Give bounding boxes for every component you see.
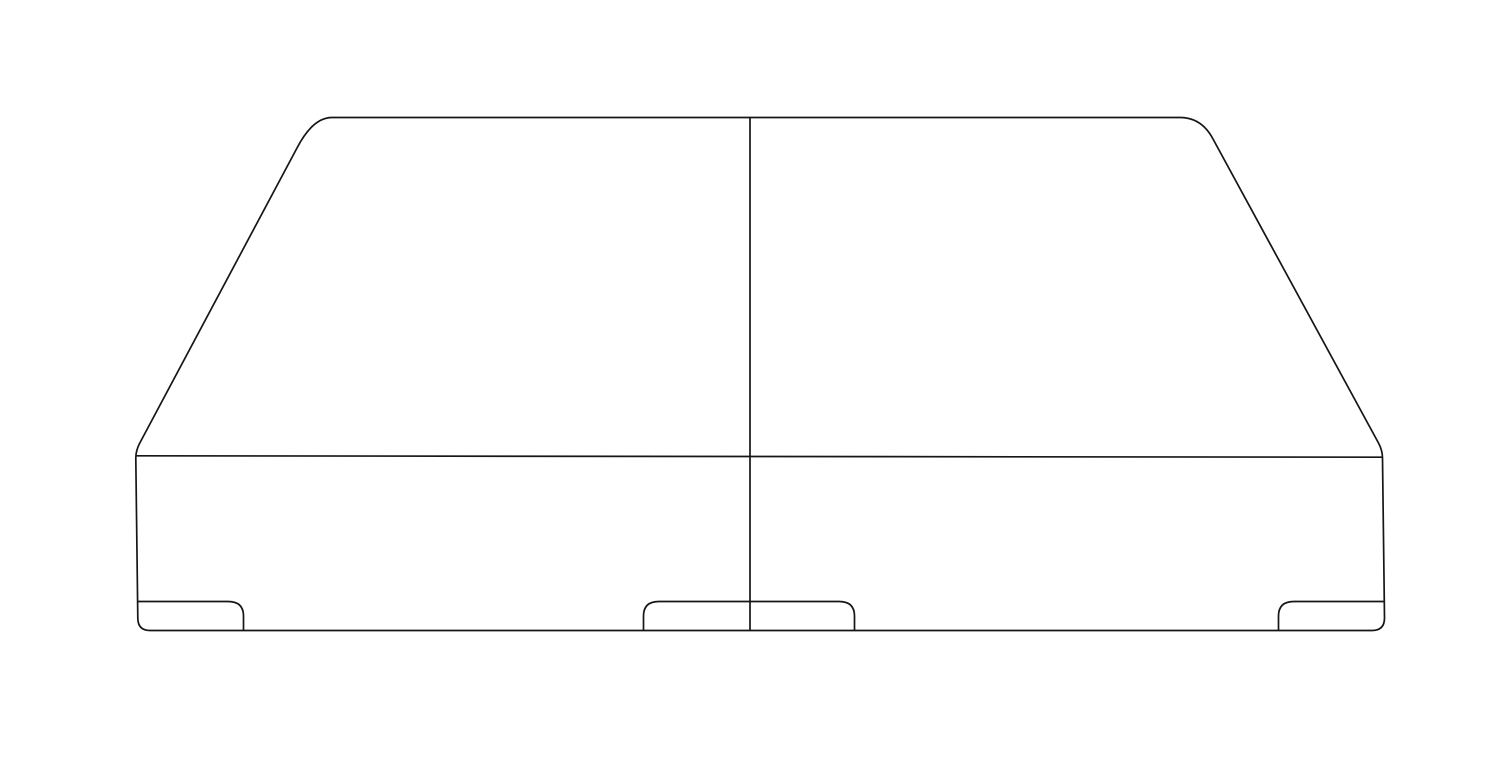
- left-foot: [137, 602, 243, 631]
- center-feet: [644, 602, 855, 631]
- box-spring-line-drawing: [0, 0, 1500, 768]
- foundation-outline: [136, 118, 1385, 631]
- illustration-canvas: [0, 0, 1500, 768]
- right-foot: [1279, 602, 1385, 631]
- deck-edge-line: [136, 456, 1383, 457]
